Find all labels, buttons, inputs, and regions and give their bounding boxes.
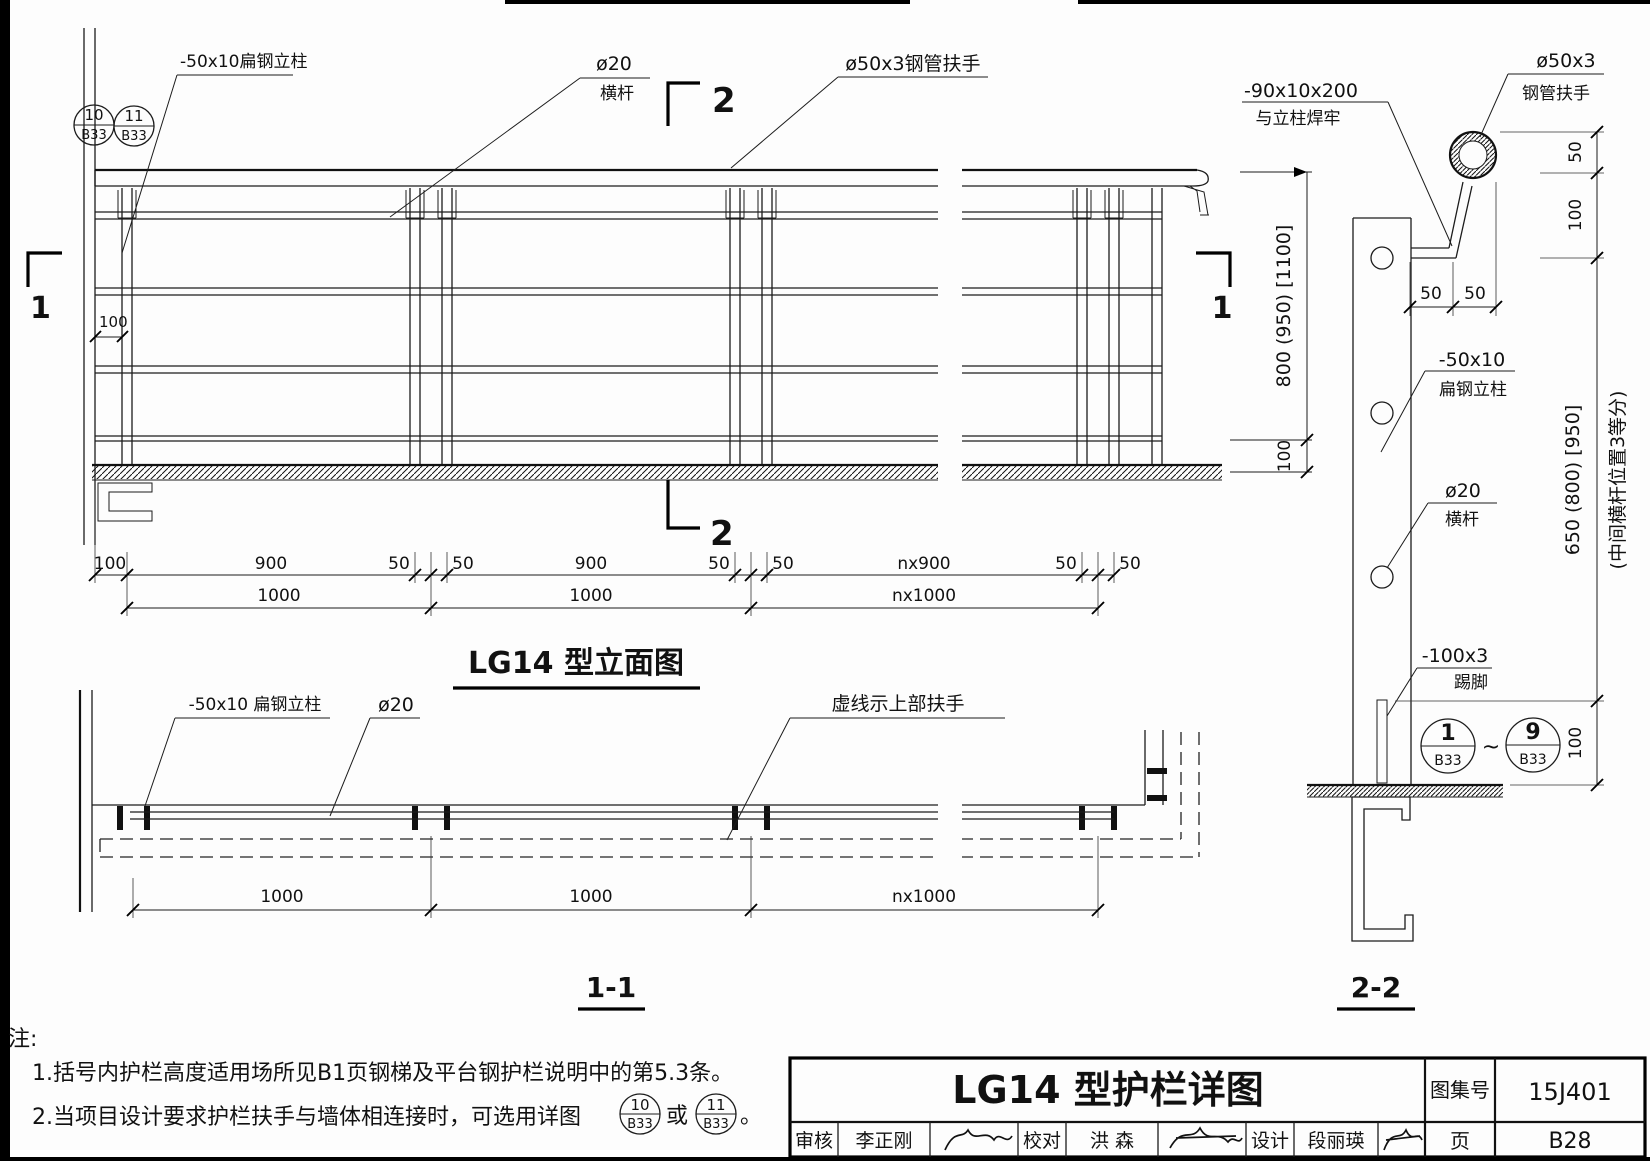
notes-header: 注:: [8, 1027, 37, 1052]
section-label-handrail: ø50x3 钢管扶手: [1480, 50, 1604, 137]
kick-plate-lines: [95, 436, 1162, 441]
svg-text:ø20: ø20: [1445, 480, 1481, 502]
svg-text:900: 900: [255, 554, 287, 574]
handrail-pipe-section: [1450, 132, 1496, 178]
atlas-number: 15J401: [1528, 1078, 1611, 1106]
plan-label-rod: ø20: [330, 694, 420, 816]
notes: 注: 1.括号内护栏高度适用场所见B1页钢梯及平台钢护栏说明中的第5.3条。 2…: [8, 1027, 762, 1134]
section-view: ø50x3 钢管扶手 -90x10x200 与立柱焊牢 -50x10 扁钢立柱 …: [1242, 50, 1629, 1009]
detail-circle-11-B33: 11 B33: [114, 106, 154, 146]
tilde: ~: [1482, 735, 1500, 760]
elevation-label-post: -50x10扁钢立柱: [122, 52, 307, 253]
atlas-label: 图集号: [1430, 1078, 1490, 1102]
note-circle-11-B33: 11 B33: [696, 1094, 736, 1134]
rod-section: [1371, 566, 1393, 588]
design-name: 段丽瑛: [1307, 1130, 1364, 1152]
detail-circle-10-B33: 10 B33: [74, 105, 114, 145]
check-name: 洪 森: [1090, 1130, 1134, 1152]
svg-text:50: 50: [388, 554, 410, 574]
svg-text:2: 2: [710, 514, 734, 554]
elevation-title: LG14 型立面图: [453, 646, 700, 688]
note-circle-10-B33: 10 B33: [620, 1094, 660, 1134]
bracket-plate: [1411, 182, 1472, 258]
elevation-dim-wall-offset: 100: [90, 313, 128, 342]
page-number: B28: [1548, 1129, 1591, 1154]
note-or: 或: [666, 1104, 688, 1129]
svg-text:50: 50: [772, 554, 794, 574]
rod-section: [1371, 402, 1393, 424]
section-dim-note: (中间横杆位置3等分): [1607, 391, 1629, 570]
elevation-dim-height: 800 (950) [1100] 100: [1230, 167, 1313, 478]
plan-post-marks: [117, 768, 1167, 830]
svg-text:1: 1: [30, 291, 51, 326]
elevation-view: 10 B33 11 B33 -50x10扁钢立柱 ø20 横杆 ø50x3钢管扶…: [28, 28, 1313, 688]
edge-channel: [98, 483, 152, 521]
detail-sheet: B33: [121, 129, 146, 144]
title-block: LG14 型护栏详图 图集号 15J401 页 B28 审核 李正刚 校对 洪 …: [790, 1058, 1645, 1157]
plan-rod-lines: [130, 812, 1114, 819]
svg-text:1000: 1000: [257, 586, 300, 606]
section-mark-2-bottom: 2: [668, 480, 734, 554]
svg-text:踢脚: 踢脚: [1454, 673, 1488, 693]
svg-text:9: 9: [1525, 720, 1540, 745]
svg-text:-50x10: -50x10: [1439, 349, 1505, 371]
section-kick-plate: [1377, 700, 1387, 783]
svg-text:B33: B33: [1519, 752, 1546, 768]
svg-text:50: 50: [452, 554, 474, 574]
section-mark-1-left: 1: [28, 253, 62, 326]
section-label-kick: -100x3 踢脚: [1387, 645, 1492, 716]
svg-text:900: 900: [575, 554, 607, 574]
svg-text:nx1000: nx1000: [892, 887, 956, 907]
svg-text:与立柱焊牢: 与立柱焊牢: [1256, 109, 1341, 129]
svg-text:B33: B33: [1434, 753, 1461, 769]
break-gap: [938, 158, 962, 492]
svg-text:-90x10x200: -90x10x200: [1244, 80, 1358, 102]
svg-text:1-1: 1-1: [586, 971, 637, 1004]
detail-sheet: B33: [81, 128, 106, 143]
detail-num: 10: [84, 106, 103, 124]
section-title: 2-2: [1337, 971, 1415, 1009]
plan-view: -50x10 扁钢立柱 ø20 虚线示上部扶手 1000 1000 nx1000…: [80, 690, 1199, 1009]
svg-text:B33: B33: [627, 1117, 652, 1132]
page-label: 页: [1450, 1129, 1470, 1153]
detail-circle-9-B33: 9 B33: [1506, 718, 1560, 772]
svg-text:-50x10扁钢立柱: -50x10扁钢立柱: [180, 52, 307, 72]
svg-text:横杆: 横杆: [1445, 510, 1479, 530]
drawing-sheet: 10 B33 11 B33 -50x10扁钢立柱 ø20 横杆 ø50x3钢管扶…: [0, 0, 1650, 1161]
handrail-end-bracket: [1184, 186, 1209, 215]
plan-label-post: -50x10 扁钢立柱: [145, 695, 330, 806]
svg-text:nx1000: nx1000: [892, 586, 956, 606]
elevation-label-rod: ø20 横杆: [390, 53, 650, 217]
svg-text:50: 50: [1420, 284, 1442, 304]
elevation-posts: [118, 188, 1162, 465]
svg-text:钢管扶手: 钢管扶手: [1522, 84, 1590, 104]
floor-plate: [92, 466, 1222, 479]
review-label: 审核: [795, 1130, 833, 1152]
svg-text:800 (950) [1100]: 800 (950) [1100]: [1273, 225, 1295, 388]
svg-text:2: 2: [712, 81, 736, 121]
signature-icon: [1170, 1128, 1242, 1148]
svg-text:ø50x3: ø50x3: [1536, 50, 1595, 72]
plan-title: 1-1: [578, 971, 645, 1009]
detail-num: 11: [124, 107, 143, 125]
svg-text:1000: 1000: [569, 586, 612, 606]
svg-text:扁钢立柱: 扁钢立柱: [1439, 380, 1507, 400]
svg-text:ø20: ø20: [596, 53, 632, 75]
svg-text:-50x10 扁钢立柱: -50x10 扁钢立柱: [189, 695, 322, 715]
section-label-bracket: -90x10x200 与立柱焊牢: [1242, 80, 1452, 246]
svg-text:-100x3: -100x3: [1422, 645, 1488, 667]
rail-rods: [95, 212, 1162, 373]
svg-text:1000: 1000: [569, 887, 612, 907]
svg-text:100: 100: [1566, 199, 1586, 231]
signature-icon: [945, 1130, 1012, 1150]
svg-text:50: 50: [1566, 141, 1586, 163]
design-label: 设计: [1251, 1130, 1289, 1152]
svg-text:虚线示上部扶手: 虚线示上部扶手: [831, 693, 964, 715]
page-border: [0, 0, 1650, 1161]
svg-text:1000: 1000: [260, 887, 303, 907]
elevation-label-handrail: ø50x3钢管扶手: [731, 53, 988, 168]
svg-text:B33: B33: [703, 1117, 728, 1132]
drawing-canvas: 10 B33 11 B33 -50x10扁钢立柱 ø20 横杆 ø50x3钢管扶…: [0, 0, 1650, 1161]
section-floor: [1307, 785, 1503, 797]
rod-section: [1371, 247, 1393, 269]
section-channel: [1352, 797, 1413, 941]
plan-dashed-handrail: [100, 732, 1199, 857]
note-line-2: 2.当项目设计要求护栏扶手与墙体相连接时，可选用详图: [32, 1105, 581, 1130]
check-label: 校对: [1023, 1130, 1061, 1152]
section-dims-right: 50 100 650 (800) [950] 100 (中间横杆位置3等分): [1395, 126, 1629, 791]
section-dim-top: 50 50: [1404, 182, 1502, 316]
svg-text:50: 50: [1119, 554, 1141, 574]
svg-text:横杆: 横杆: [600, 84, 634, 104]
sheet-title: LG14 型护栏详图: [952, 1068, 1264, 1112]
note-line-1: 1.括号内护栏高度适用场所见B1页钢梯及平台钢护栏说明中的第5.3条。: [32, 1061, 733, 1086]
svg-text:ø20: ø20: [378, 694, 414, 716]
section-mark-1-right: 1: [1196, 253, 1232, 326]
detail-circle-1-B33: 1 B33: [1421, 719, 1475, 773]
handrail-end-cap: [1193, 170, 1208, 186]
svg-text:ø50x3钢管扶手: ø50x3钢管扶手: [845, 53, 980, 75]
note-end: 。: [740, 1104, 762, 1129]
svg-text:100: 100: [99, 313, 128, 331]
svg-text:100: 100: [1566, 727, 1586, 759]
svg-text:50: 50: [1055, 554, 1077, 574]
signature-icon: [1384, 1130, 1422, 1150]
plan-break-gap: [938, 800, 962, 864]
svg-text:100: 100: [1275, 440, 1295, 472]
review-name: 李正刚: [855, 1130, 912, 1152]
section-mark-2-top: 2: [668, 81, 736, 126]
svg-text:1: 1: [1212, 291, 1233, 326]
svg-text:nx900: nx900: [897, 554, 950, 574]
svg-text:50: 50: [708, 554, 730, 574]
svg-text:2-2: 2-2: [1351, 971, 1402, 1004]
section-label-post: -50x10 扁钢立柱: [1381, 349, 1515, 452]
svg-text:11: 11: [706, 1096, 725, 1114]
section-label-rod: ø20 横杆: [1387, 480, 1497, 568]
svg-text:650 (800) [950]: 650 (800) [950]: [1562, 405, 1584, 556]
svg-text:50: 50: [1464, 284, 1486, 304]
elevation-dims: 100 900 50 50 900 50 50 nx900 50 50 1000…: [89, 490, 1141, 616]
svg-text:100: 100: [94, 554, 126, 574]
svg-text:10: 10: [630, 1096, 649, 1114]
svg-text:1: 1: [1440, 721, 1455, 746]
svg-text:LG14 型立面图: LG14 型立面图: [468, 646, 684, 681]
